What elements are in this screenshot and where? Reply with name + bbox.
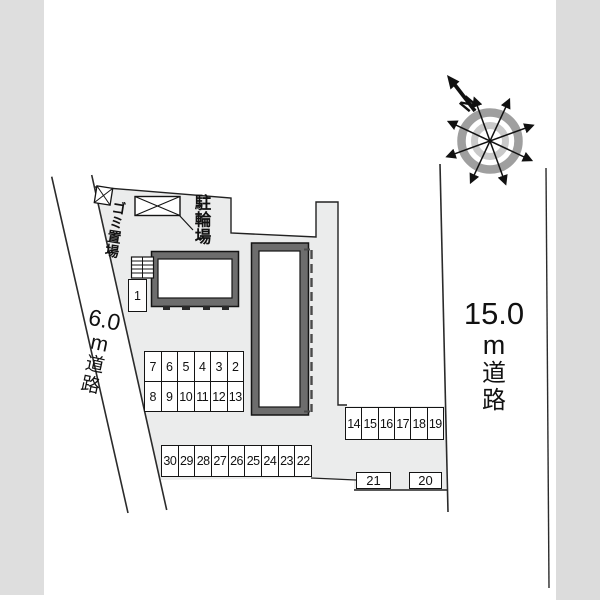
building-a-interior <box>158 259 232 298</box>
parking-grid-middle: 765432 8910111213 <box>144 351 244 412</box>
left-road-label-line: 6.0 <box>86 305 122 336</box>
parking-space: 14 <box>346 408 362 439</box>
parking-row-22-30: 302928272625242322 <box>162 446 311 476</box>
bike-parking-label: 駐輪場 <box>189 194 213 245</box>
parking-space: 28 <box>195 446 212 476</box>
parking-space-20: 20 <box>409 472 442 489</box>
right-outside-band <box>556 0 600 600</box>
parking-space-21: 21 <box>356 472 391 489</box>
right-road-label-line: 道 <box>482 360 506 387</box>
parking-space: 9 <box>162 382 179 411</box>
stairs-hatch <box>132 257 154 278</box>
parking-row-14-19: 141516171819 <box>346 408 443 439</box>
parking-space: 3 <box>211 352 228 381</box>
parking-space: 30 <box>162 446 179 476</box>
left-outside-band <box>0 0 44 595</box>
building-b-interior <box>259 251 300 407</box>
parking-space: 23 <box>279 446 296 476</box>
parking-space: 27 <box>212 446 229 476</box>
parking-grid-bottom: 302928272625242322 <box>161 445 312 477</box>
right-road-label-line: m <box>483 331 506 360</box>
right-road-label-line: 路 <box>482 387 506 414</box>
parking-space: 26 <box>229 446 246 476</box>
parking-space: 22 <box>295 446 311 476</box>
parking-space: 4 <box>195 352 212 381</box>
parking-row-2-7: 765432 <box>145 352 243 382</box>
site-plan-drawing: N 765432 8910111213 302928272625242322 1… <box>0 0 600 600</box>
parking-space: 29 <box>179 446 196 476</box>
left-road-label-line: 路 <box>79 374 102 398</box>
parking-space: 2 <box>228 352 244 381</box>
parking-space: 24 <box>262 446 279 476</box>
parking-space-1: 1 <box>128 279 147 312</box>
parking-space: 7 <box>145 352 162 381</box>
parking-space: 5 <box>178 352 195 381</box>
parking-space: 19 <box>428 408 443 439</box>
right-road-width-label: 15.0m道路 <box>458 296 530 414</box>
bike-parking-box <box>135 197 180 216</box>
parking-row-8-13: 8910111213 <box>145 382 243 411</box>
parking-space: 8 <box>145 382 162 411</box>
parking-space: 6 <box>162 352 179 381</box>
north-arrow: N <box>447 75 481 116</box>
parking-space: 10 <box>178 382 195 411</box>
parking-space: 25 <box>245 446 262 476</box>
parking-space: 15 <box>362 408 378 439</box>
right-road-label-line: 15.0 <box>464 296 524 331</box>
parking-grid-right: 141516171819 <box>345 407 444 440</box>
compass: N <box>447 75 533 184</box>
parking-space: 13 <box>228 382 244 411</box>
parking-space: 17 <box>395 408 411 439</box>
parking-space: 12 <box>211 382 228 411</box>
parking-space: 18 <box>411 408 427 439</box>
parking-space: 11 <box>195 382 212 411</box>
right-road-outer-edge <box>546 168 549 588</box>
parking-space: 16 <box>379 408 395 439</box>
